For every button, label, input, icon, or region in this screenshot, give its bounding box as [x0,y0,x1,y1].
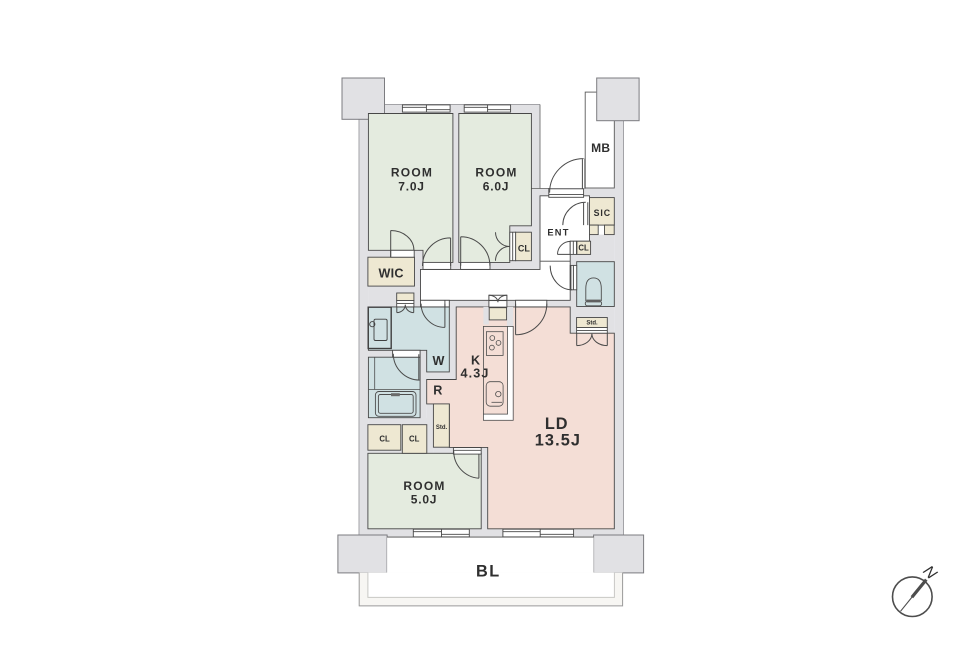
svg-text:ROOM: ROOM [391,166,433,180]
svg-text:ENT: ENT [547,227,569,237]
svg-text:4.3J: 4.3J [461,367,490,381]
svg-text:Std.: Std. [436,425,448,431]
svg-text:Std.: Std. [586,321,598,327]
svg-text:K: K [471,353,480,367]
svg-text:BL: BL [476,563,501,581]
svg-text:R: R [433,384,442,398]
svg-text:13.5J: 13.5J [535,431,581,449]
svg-text:ROOM: ROOM [475,166,517,180]
svg-text:7.0J: 7.0J [398,179,425,193]
svg-text:W: W [433,354,445,368]
svg-text:CL: CL [518,244,530,254]
svg-text:MB: MB [591,141,610,155]
svg-text:LD: LD [545,415,569,433]
svg-text:CL: CL [578,243,589,252]
svg-text:WIC: WIC [379,266,404,280]
svg-text:ROOM: ROOM [403,479,445,493]
svg-text:CL: CL [379,434,390,443]
svg-text:6.0J: 6.0J [483,179,510,193]
svg-text:CL: CL [409,434,420,443]
svg-text:5.0J: 5.0J [411,493,438,507]
svg-text:SIC: SIC [594,208,611,218]
